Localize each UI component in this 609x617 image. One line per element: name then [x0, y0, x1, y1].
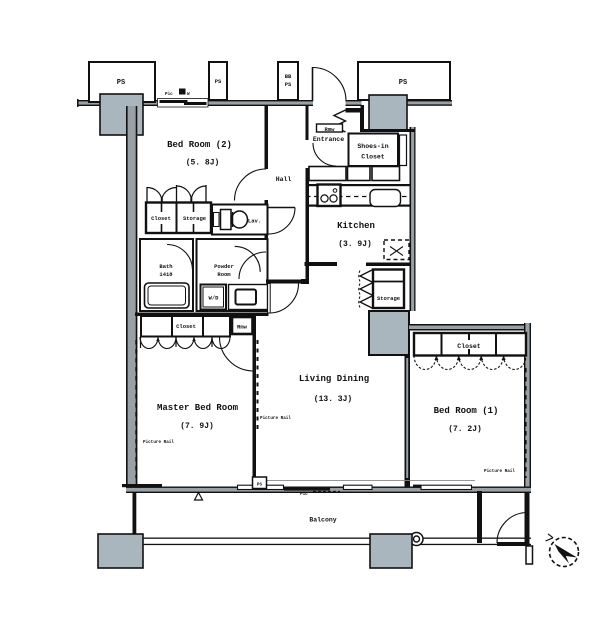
svg-text:(5. 8J): (5. 8J) — [186, 159, 220, 168]
svg-text:Entrance: Entrance — [313, 136, 344, 143]
svg-text:Lav.: Lav. — [248, 218, 261, 225]
svg-text:Picture Rail: Picture Rail — [260, 416, 291, 421]
svg-text:Kitchen: Kitchen — [337, 221, 375, 231]
svg-text:Closet: Closet — [457, 343, 481, 350]
svg-text:PS: PS — [215, 78, 222, 85]
svg-text:Pic: Pic — [300, 492, 308, 497]
svg-text:Closet: Closet — [361, 154, 385, 161]
svg-text:Rmw: Rmw — [237, 324, 248, 331]
svg-text:PS: PS — [285, 81, 292, 88]
svg-text:Balcony: Balcony — [309, 517, 336, 524]
svg-text:PS: PS — [257, 483, 263, 488]
svg-text:BB: BB — [285, 73, 292, 80]
svg-text:Picture Rail: Picture Rail — [484, 469, 515, 474]
svg-text:Rmw: Rmw — [325, 126, 336, 133]
svg-text:Master Bed Room: Master Bed Room — [157, 403, 239, 413]
svg-text:(13. 3J): (13. 3J) — [314, 395, 352, 404]
svg-text:Storage: Storage — [377, 295, 401, 302]
svg-text:Closet: Closet — [176, 323, 196, 330]
svg-text:Closet: Closet — [151, 215, 171, 222]
svg-text:PS: PS — [399, 79, 407, 87]
svg-text:Shoes-in: Shoes-in — [357, 143, 388, 150]
svg-text:(3. 9J): (3. 9J) — [338, 240, 372, 249]
svg-text:Picture Rail: Picture Rail — [143, 440, 174, 445]
svg-text:Room: Room — [217, 271, 231, 278]
svg-text:(7. 9J): (7. 9J) — [180, 422, 214, 431]
svg-text:Storage: Storage — [183, 215, 207, 222]
svg-text:W: W — [187, 92, 190, 97]
svg-text:W/D: W/D — [209, 295, 220, 302]
svg-text:(7. 2J): (7. 2J) — [448, 425, 482, 434]
svg-text:Bed Room (2): Bed Room (2) — [167, 140, 232, 150]
svg-text:Bath: Bath — [159, 263, 172, 270]
svg-text:Powder: Powder — [214, 263, 234, 270]
svg-text:Hall: Hall — [276, 176, 292, 183]
svg-text:Pic: Pic — [165, 92, 173, 97]
svg-text:PS: PS — [117, 79, 125, 87]
svg-text:1418: 1418 — [159, 271, 173, 278]
svg-text:Living Dining: Living Dining — [299, 374, 369, 384]
svg-text:Bed Room (1): Bed Room (1) — [434, 406, 499, 416]
